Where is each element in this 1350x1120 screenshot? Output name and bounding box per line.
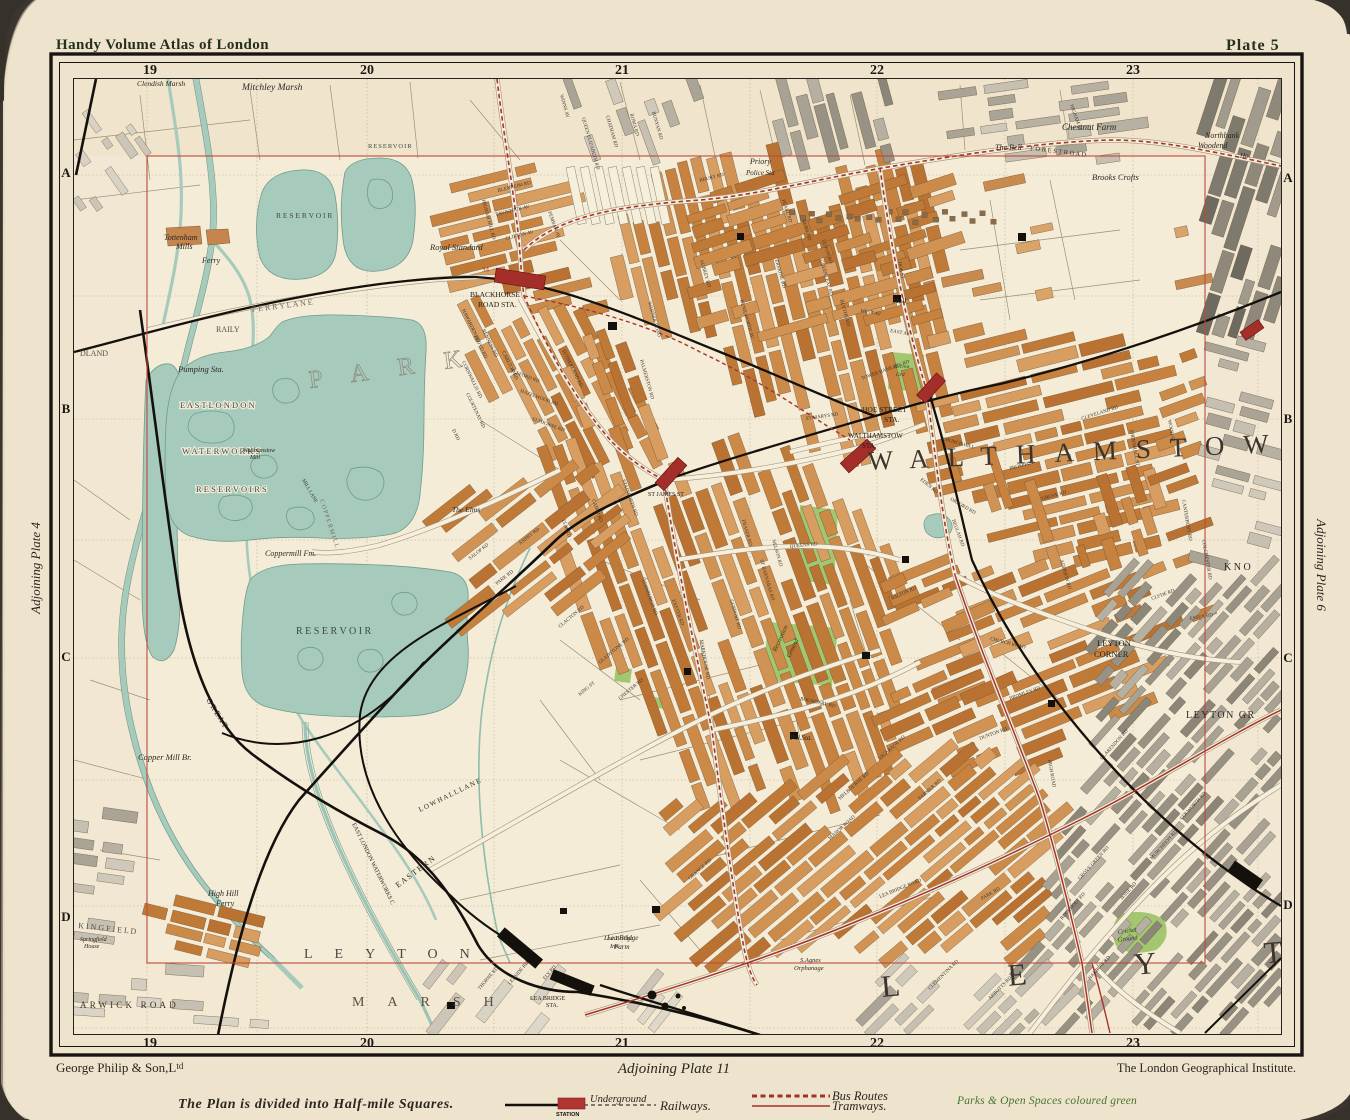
svg-text:R E S E R V O I R: R E S E R V O I R — [276, 211, 332, 220]
svg-text:STA.: STA. — [884, 415, 900, 424]
svg-text:23: 23 — [1126, 1036, 1140, 1051]
svg-text:A: A — [61, 165, 71, 180]
svg-text:STA.: STA. — [546, 1003, 559, 1009]
svg-text:MARSH: MARSH — [352, 995, 517, 1010]
svg-text:Mitchley Marsh: Mitchley Marsh — [241, 83, 303, 93]
svg-text:High Hill: High Hill — [207, 889, 239, 898]
svg-text:Adjoining Plate 6: Adjoining Plate 6 — [1314, 518, 1329, 611]
svg-text:34: 34 — [482, 266, 490, 274]
svg-text:Tottenham: Tottenham — [164, 233, 198, 242]
svg-text:LEA BRIDGE: LEA BRIDGE — [530, 996, 566, 1002]
svg-text:D: D — [1283, 897, 1292, 912]
svg-text:Handy Volume Atlas of London: Handy Volume Atlas of London — [56, 37, 269, 53]
svg-text:Ferry: Ferry — [215, 899, 235, 908]
svg-text:House: House — [83, 944, 100, 950]
svg-text:Adjoining Plate 11: Adjoining Plate 11 — [617, 1061, 730, 1077]
svg-text:Grd: Grd — [896, 372, 905, 378]
svg-text:R E S E R V O I R S: R E S E R V O I R S — [196, 484, 267, 494]
svg-text:Police Sta: Police Sta — [745, 169, 775, 177]
svg-text:STA.: STA. — [862, 442, 877, 450]
svg-text:Pumping Sta.: Pumping Sta. — [177, 364, 224, 374]
svg-text:ST JAMES ST: ST JAMES ST — [648, 492, 684, 498]
svg-text:Chestnut Farm: Chestnut Farm — [1062, 122, 1117, 132]
svg-text:The Plan is divided into Half-: The Plan is divided into Half-mile Squar… — [178, 1097, 454, 1112]
svg-text:RAILY: RAILY — [216, 325, 240, 334]
svg-text:Hall: Hall — [892, 296, 906, 305]
svg-text:Parks & Open Spaces coloured g: Parks & Open Spaces coloured green — [956, 1095, 1137, 1107]
svg-text:Walthamstow: Walthamstow — [243, 448, 275, 454]
svg-text:A: A — [1283, 170, 1293, 185]
svg-text:22: 22 — [870, 63, 884, 78]
svg-text:George Philip & Son,Ltd: George Philip & Son,Ltd — [56, 1060, 184, 1075]
svg-text:B: B — [62, 401, 71, 416]
svg-text:Priory: Priory — [749, 157, 771, 166]
svg-text:19: 19 — [143, 1036, 157, 1051]
svg-text:The Elms: The Elms — [452, 505, 480, 514]
svg-text:LEYTON GR: LEYTON GR — [1186, 710, 1256, 721]
svg-text:21: 21 — [615, 1036, 629, 1051]
svg-text:E A S T L O N D O N: E A S T L O N D O N — [180, 400, 255, 410]
svg-text:BLACKHORSE: BLACKHORSE — [470, 290, 520, 299]
svg-text:ARWICK ROAD: ARWICK ROAD — [80, 1000, 179, 1010]
svg-text:RESERVOIR: RESERVOIR — [368, 143, 413, 150]
svg-text:CORNER: CORNER — [1094, 649, 1129, 659]
svg-text:Farm: Farm — [613, 943, 630, 951]
svg-text:Coppermill Fm.: Coppermill Fm. — [265, 549, 316, 558]
svg-text:D: D — [61, 909, 70, 924]
svg-text:Railways.: Railways. — [659, 1098, 711, 1113]
svg-text:Plate 5: Plate 5 — [1226, 37, 1280, 54]
svg-text:S.Agnes: S.Agnes — [800, 957, 821, 964]
svg-text:20: 20 — [360, 63, 374, 78]
svg-text:STATION: STATION — [556, 1112, 579, 1118]
svg-text:Adjoining Plate 4: Adjoining Plate 4 — [28, 522, 43, 615]
svg-text:Pol.Sta.: Pol.Sta. — [789, 734, 812, 742]
svg-text:LEYTON: LEYTON — [1097, 638, 1131, 648]
svg-text:19: 19 — [143, 63, 157, 78]
svg-text:C: C — [61, 649, 70, 664]
svg-text:B: B — [1284, 411, 1293, 426]
svg-text:Ho.: Ho. — [1239, 152, 1251, 160]
svg-text:Mills: Mills — [175, 242, 192, 251]
svg-text:22: 22 — [870, 1036, 884, 1051]
svg-text:Tramways.: Tramways. — [832, 1099, 887, 1113]
svg-text:Northbank: Northbank — [1204, 131, 1240, 140]
svg-text:Underground: Underground — [590, 1094, 647, 1105]
svg-text:LEYTON: LEYTON — [304, 947, 492, 962]
svg-text:R E S E R V O I R: R E S E R V O I R — [296, 626, 372, 637]
svg-text:ROAD STA.: ROAD STA. — [478, 300, 517, 309]
svg-text:Orphanage: Orphanage — [794, 965, 824, 972]
svg-text:20: 20 — [360, 1036, 374, 1051]
svg-text:21: 21 — [615, 63, 629, 78]
svg-text:Copper Mill Br.: Copper Mill Br. — [138, 752, 192, 762]
svg-text:HOE STREET: HOE STREET — [862, 405, 907, 414]
svg-text:Woodend: Woodend — [1198, 141, 1228, 150]
svg-text:Lea Bridge: Lea Bridge — [606, 934, 638, 942]
svg-text:Brooks Crofts: Brooks Crofts — [1092, 172, 1140, 182]
svg-text:WALTHAMSTOW: WALTHAMSTOW — [848, 432, 903, 440]
svg-text:The Bell: The Bell — [995, 143, 1023, 152]
svg-text:DLAND: DLAND — [80, 349, 108, 358]
svg-text:The London Geographical Instit: The London Geographical Institute. — [1117, 1061, 1296, 1075]
svg-text:K N O: K N O — [1224, 562, 1251, 573]
svg-text:23: 23 — [1126, 63, 1140, 78]
svg-text:Mill: Mill — [249, 455, 260, 461]
svg-text:Royal Standard: Royal Standard — [429, 242, 484, 252]
svg-text:Clendish Marsh: Clendish Marsh — [137, 79, 185, 88]
svg-text:Ferry: Ferry — [201, 256, 221, 265]
svg-text:Springfield: Springfield — [80, 936, 108, 943]
svg-text:C: C — [1283, 650, 1292, 665]
